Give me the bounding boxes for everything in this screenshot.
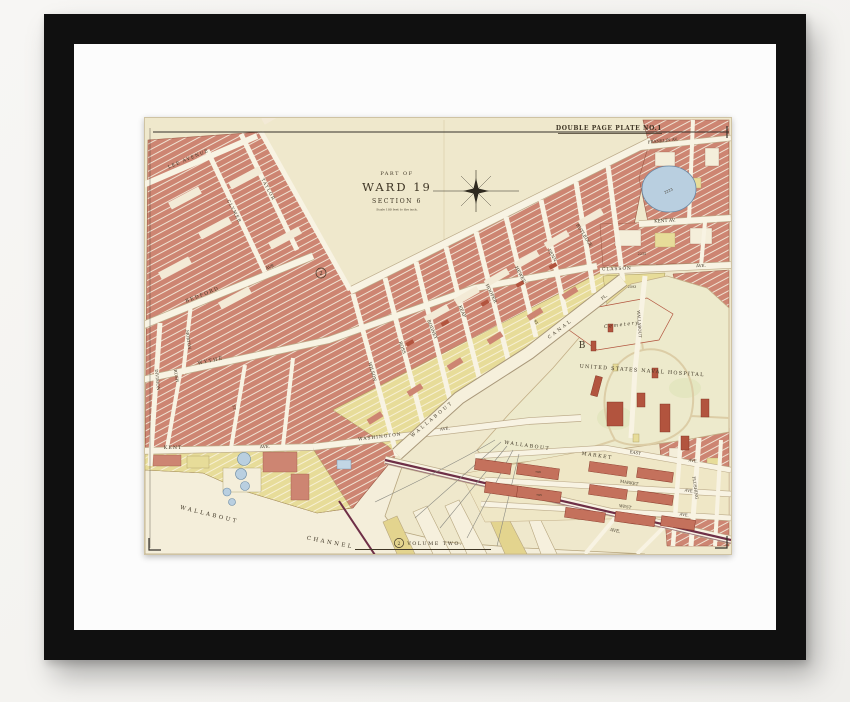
block-marker-b: B [579, 341, 586, 351]
frame-matte: LEE AVENUE TAYLOR CLYMER BEDFORD AVE. MO… [74, 44, 776, 630]
title-part-of: PART OF [380, 171, 413, 177]
street-label-classon-ave: AVE. [695, 263, 706, 268]
title-scale-note: Scale 100 feet to the inch. [376, 208, 417, 212]
street-label-classon: CLASSON [602, 266, 632, 272]
market-number-795: 795 [536, 493, 542, 497]
plate-number-label: DOUBLE PAGE PLATE NO.1 [556, 125, 662, 132]
map-sheet: LEE AVENUE TAYLOR CLYMER BEDFORD AVE. MO… [144, 117, 732, 555]
title-section: SECTION 6 [372, 198, 422, 205]
street-label-kent: KENT [164, 445, 182, 451]
area-marker-number: 2 [319, 271, 322, 277]
volume-label: VOLUME TWO. [406, 541, 463, 547]
market-number-796: 796 [535, 470, 541, 474]
block-number-2215: 2215 [638, 252, 647, 256]
block-number-2593: 2593 [628, 285, 637, 289]
atlas-map-svg: LEE AVENUE TAYLOR CLYMER BEDFORD AVE. MO… [145, 118, 731, 554]
street-label-kent-ave: AVE. [259, 444, 270, 449]
hospital-lawn-2 [669, 378, 701, 398]
picture-frame: LEE AVENUE TAYLOR CLYMER BEDFORD AVE. MO… [44, 14, 806, 660]
title-ward: WARD 19 [362, 180, 432, 194]
volume-number: 2 [398, 541, 401, 547]
